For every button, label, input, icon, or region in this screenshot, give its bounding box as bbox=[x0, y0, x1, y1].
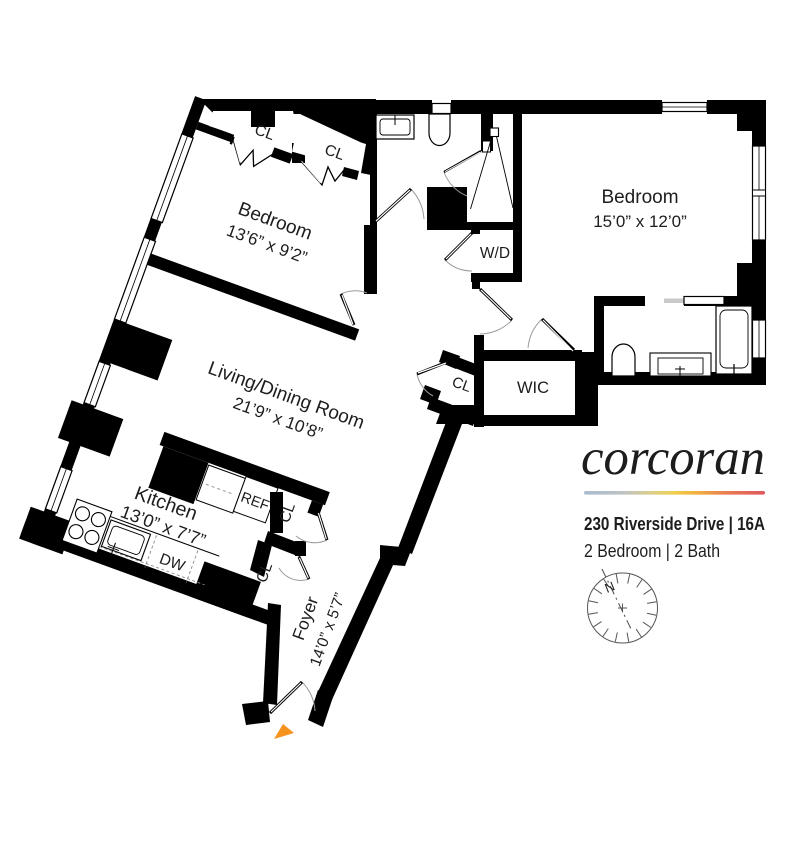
svg-text:2 Bedroom | 2 Bath: 2 Bedroom | 2 Bath bbox=[584, 540, 720, 561]
svg-text:WIC: WIC bbox=[517, 379, 549, 397]
svg-text:W/D: W/D bbox=[480, 245, 510, 262]
svg-text:230 Riverside Drive | 16A: 230 Riverside Drive | 16A bbox=[584, 513, 765, 534]
svg-text:Bedroom: Bedroom bbox=[601, 187, 678, 208]
svg-text:corcoran: corcoran bbox=[581, 430, 765, 486]
svg-text:15’0” x 12’0”: 15’0” x 12’0” bbox=[593, 212, 687, 231]
